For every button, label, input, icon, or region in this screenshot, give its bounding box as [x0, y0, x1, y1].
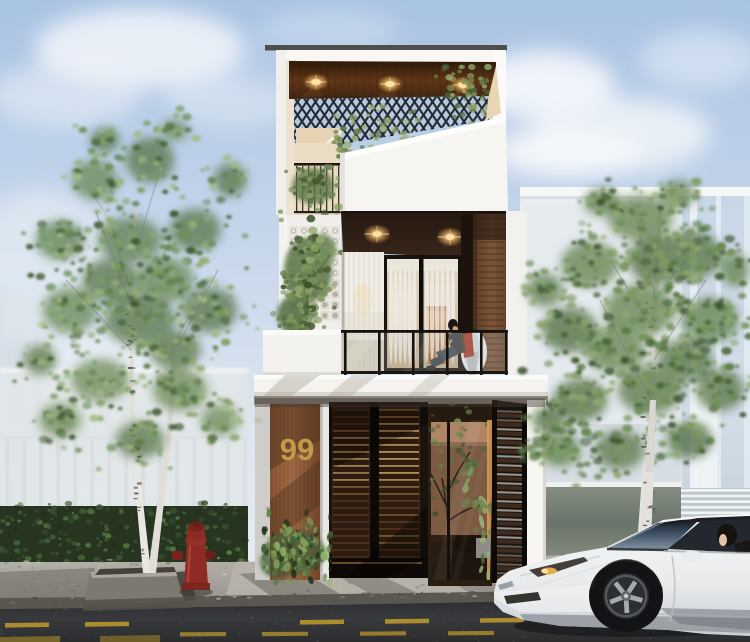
svg-text:99: 99 — [280, 432, 314, 467]
